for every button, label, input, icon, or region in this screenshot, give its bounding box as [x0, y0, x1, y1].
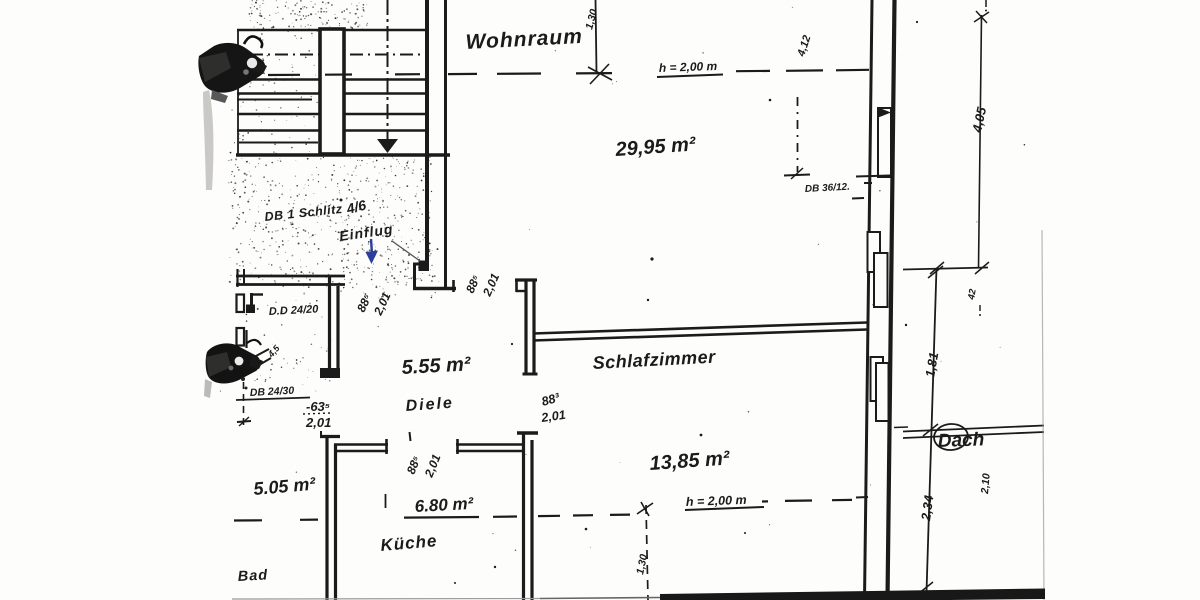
svg-text:-63⁵: -63⁵	[306, 399, 330, 414]
svg-text:Diele: Diele	[405, 395, 454, 415]
svg-text:2,10: 2,10	[979, 473, 993, 496]
svg-text:6.80 m²: 6.80 m²	[414, 494, 475, 516]
svg-text:DB 24/30: DB 24/30	[250, 385, 295, 399]
svg-text:h = 2,00 m: h = 2,00 m	[686, 493, 747, 509]
svg-text:5.55 m²: 5.55 m²	[401, 353, 472, 379]
svg-text:2,01: 2,01	[305, 415, 331, 430]
svg-text:Bad: Bad	[237, 567, 268, 585]
svg-text:h = 2,00 m: h = 2,00 m	[659, 59, 718, 75]
svg-text:DB 36/12.: DB 36/12.	[805, 182, 851, 195]
